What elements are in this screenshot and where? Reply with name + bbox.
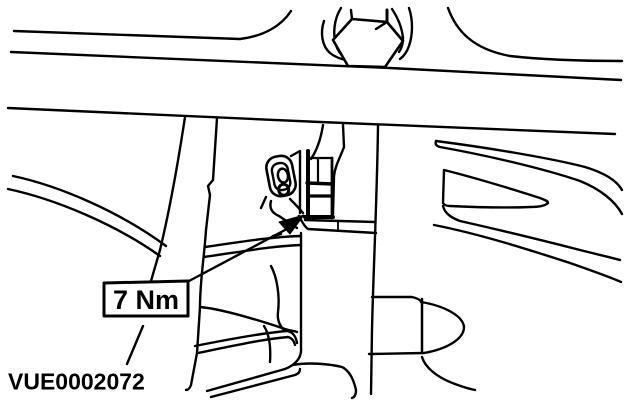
svg-text:7 Nm: 7 Nm: [113, 285, 179, 315]
svg-text:VUE0002072: VUE0002072: [8, 369, 145, 395]
